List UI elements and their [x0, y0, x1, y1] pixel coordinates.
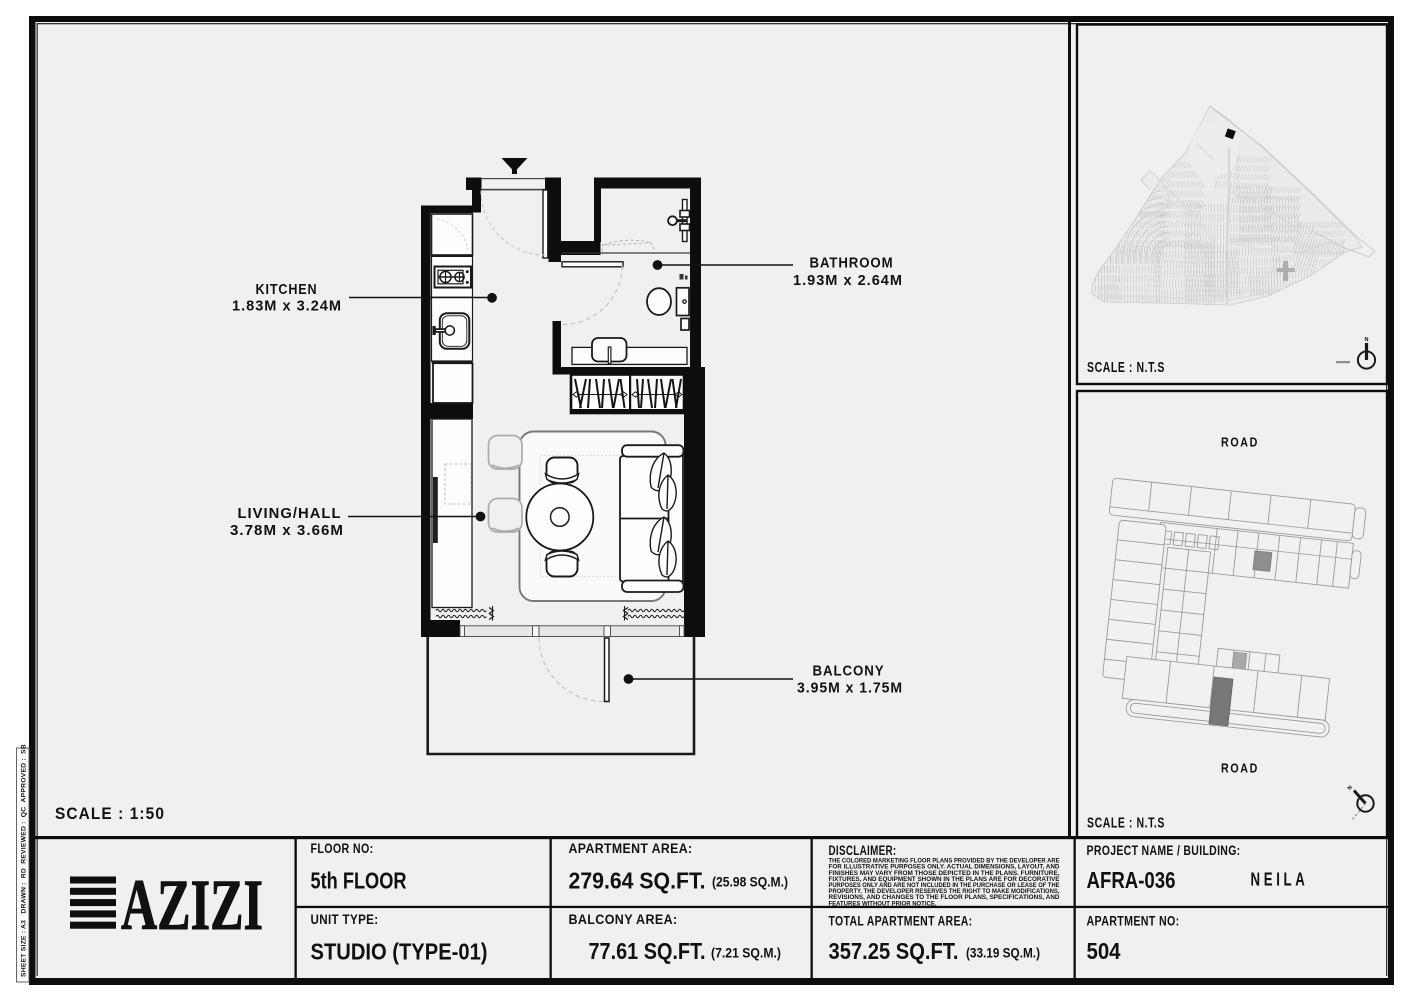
svg-text:77.61 SQ.FT.: 77.61 SQ.FT.: [589, 938, 706, 964]
svg-text:FLOOR NO:: FLOOR NO:: [311, 841, 374, 856]
svg-text:504: 504: [1087, 938, 1121, 964]
svg-text:BATHROOM: BATHROOM: [810, 256, 894, 272]
svg-text:BALCONY: BALCONY: [813, 664, 885, 680]
svg-text:ROAD: ROAD: [1221, 435, 1259, 450]
svg-text:FEATURES WITHOUT PRIOR NOTICE.: FEATURES WITHOUT PRIOR NOTICE.: [829, 900, 937, 907]
svg-text:(33.19 SQ.M.): (33.19 SQ.M.): [966, 946, 1040, 961]
svg-text:NEILA: NEILA: [1251, 870, 1309, 890]
svg-text:(7.21 SQ.M.): (7.21 SQ.M.): [711, 946, 781, 961]
svg-text:3.78M x 3.66M: 3.78M x 3.66M: [230, 523, 344, 539]
svg-text:3.95M x 1.75M: 3.95M x 1.75M: [797, 681, 903, 697]
svg-text:5th FLOOR: 5th FLOOR: [311, 868, 407, 894]
svg-text:N: N: [1365, 337, 1369, 343]
svg-text:1.83M x 3.24M: 1.83M x 3.24M: [232, 299, 342, 315]
svg-text:357.25 SQ.FT.: 357.25 SQ.FT.: [829, 938, 959, 964]
svg-text:TOTAL APARTMENT AREA:: TOTAL APARTMENT AREA:: [829, 914, 973, 929]
svg-text:UNIT TYPE:: UNIT TYPE:: [311, 912, 379, 927]
svg-text:BALCONY AREA:: BALCONY AREA:: [569, 912, 678, 927]
svg-text:SCALE : N.T.S: SCALE : N.T.S: [1087, 360, 1165, 376]
svg-text:PROJECT NAME / BUILDING:: PROJECT NAME / BUILDING:: [1087, 843, 1241, 858]
svg-text:AZIZI: AZIZI: [121, 865, 263, 945]
svg-text:STUDIO (TYPE-01): STUDIO (TYPE-01): [311, 939, 488, 965]
svg-text:KITCHEN: KITCHEN: [256, 282, 318, 298]
svg-text:279.64 SQ.FT.: 279.64 SQ.FT.: [569, 868, 706, 894]
svg-text:SHEET SIZE : A3 DRAWN : RD: SHEET SIZE : A3 DRAWN : RD REVIEWED : QC…: [21, 744, 28, 977]
svg-text:1.93M x 2.64M: 1.93M x 2.64M: [793, 273, 903, 289]
svg-text:APARTMENT AREA:: APARTMENT AREA:: [569, 841, 693, 856]
svg-text:SCALE : 1:50: SCALE : 1:50: [55, 804, 165, 823]
svg-text:APARTMENT NO:: APARTMENT NO:: [1087, 914, 1180, 929]
svg-text:(25.98 SQ.M.): (25.98 SQ.M.): [712, 875, 788, 890]
svg-text:LIVING/HALL: LIVING/HALL: [238, 506, 342, 522]
svg-text:AFRA-036: AFRA-036: [1087, 867, 1176, 893]
svg-text:SCALE : N.T.S: SCALE : N.T.S: [1087, 816, 1165, 832]
svg-text:ROAD: ROAD: [1221, 761, 1259, 776]
svg-text:DISCLAIMER:: DISCLAIMER:: [829, 843, 897, 858]
